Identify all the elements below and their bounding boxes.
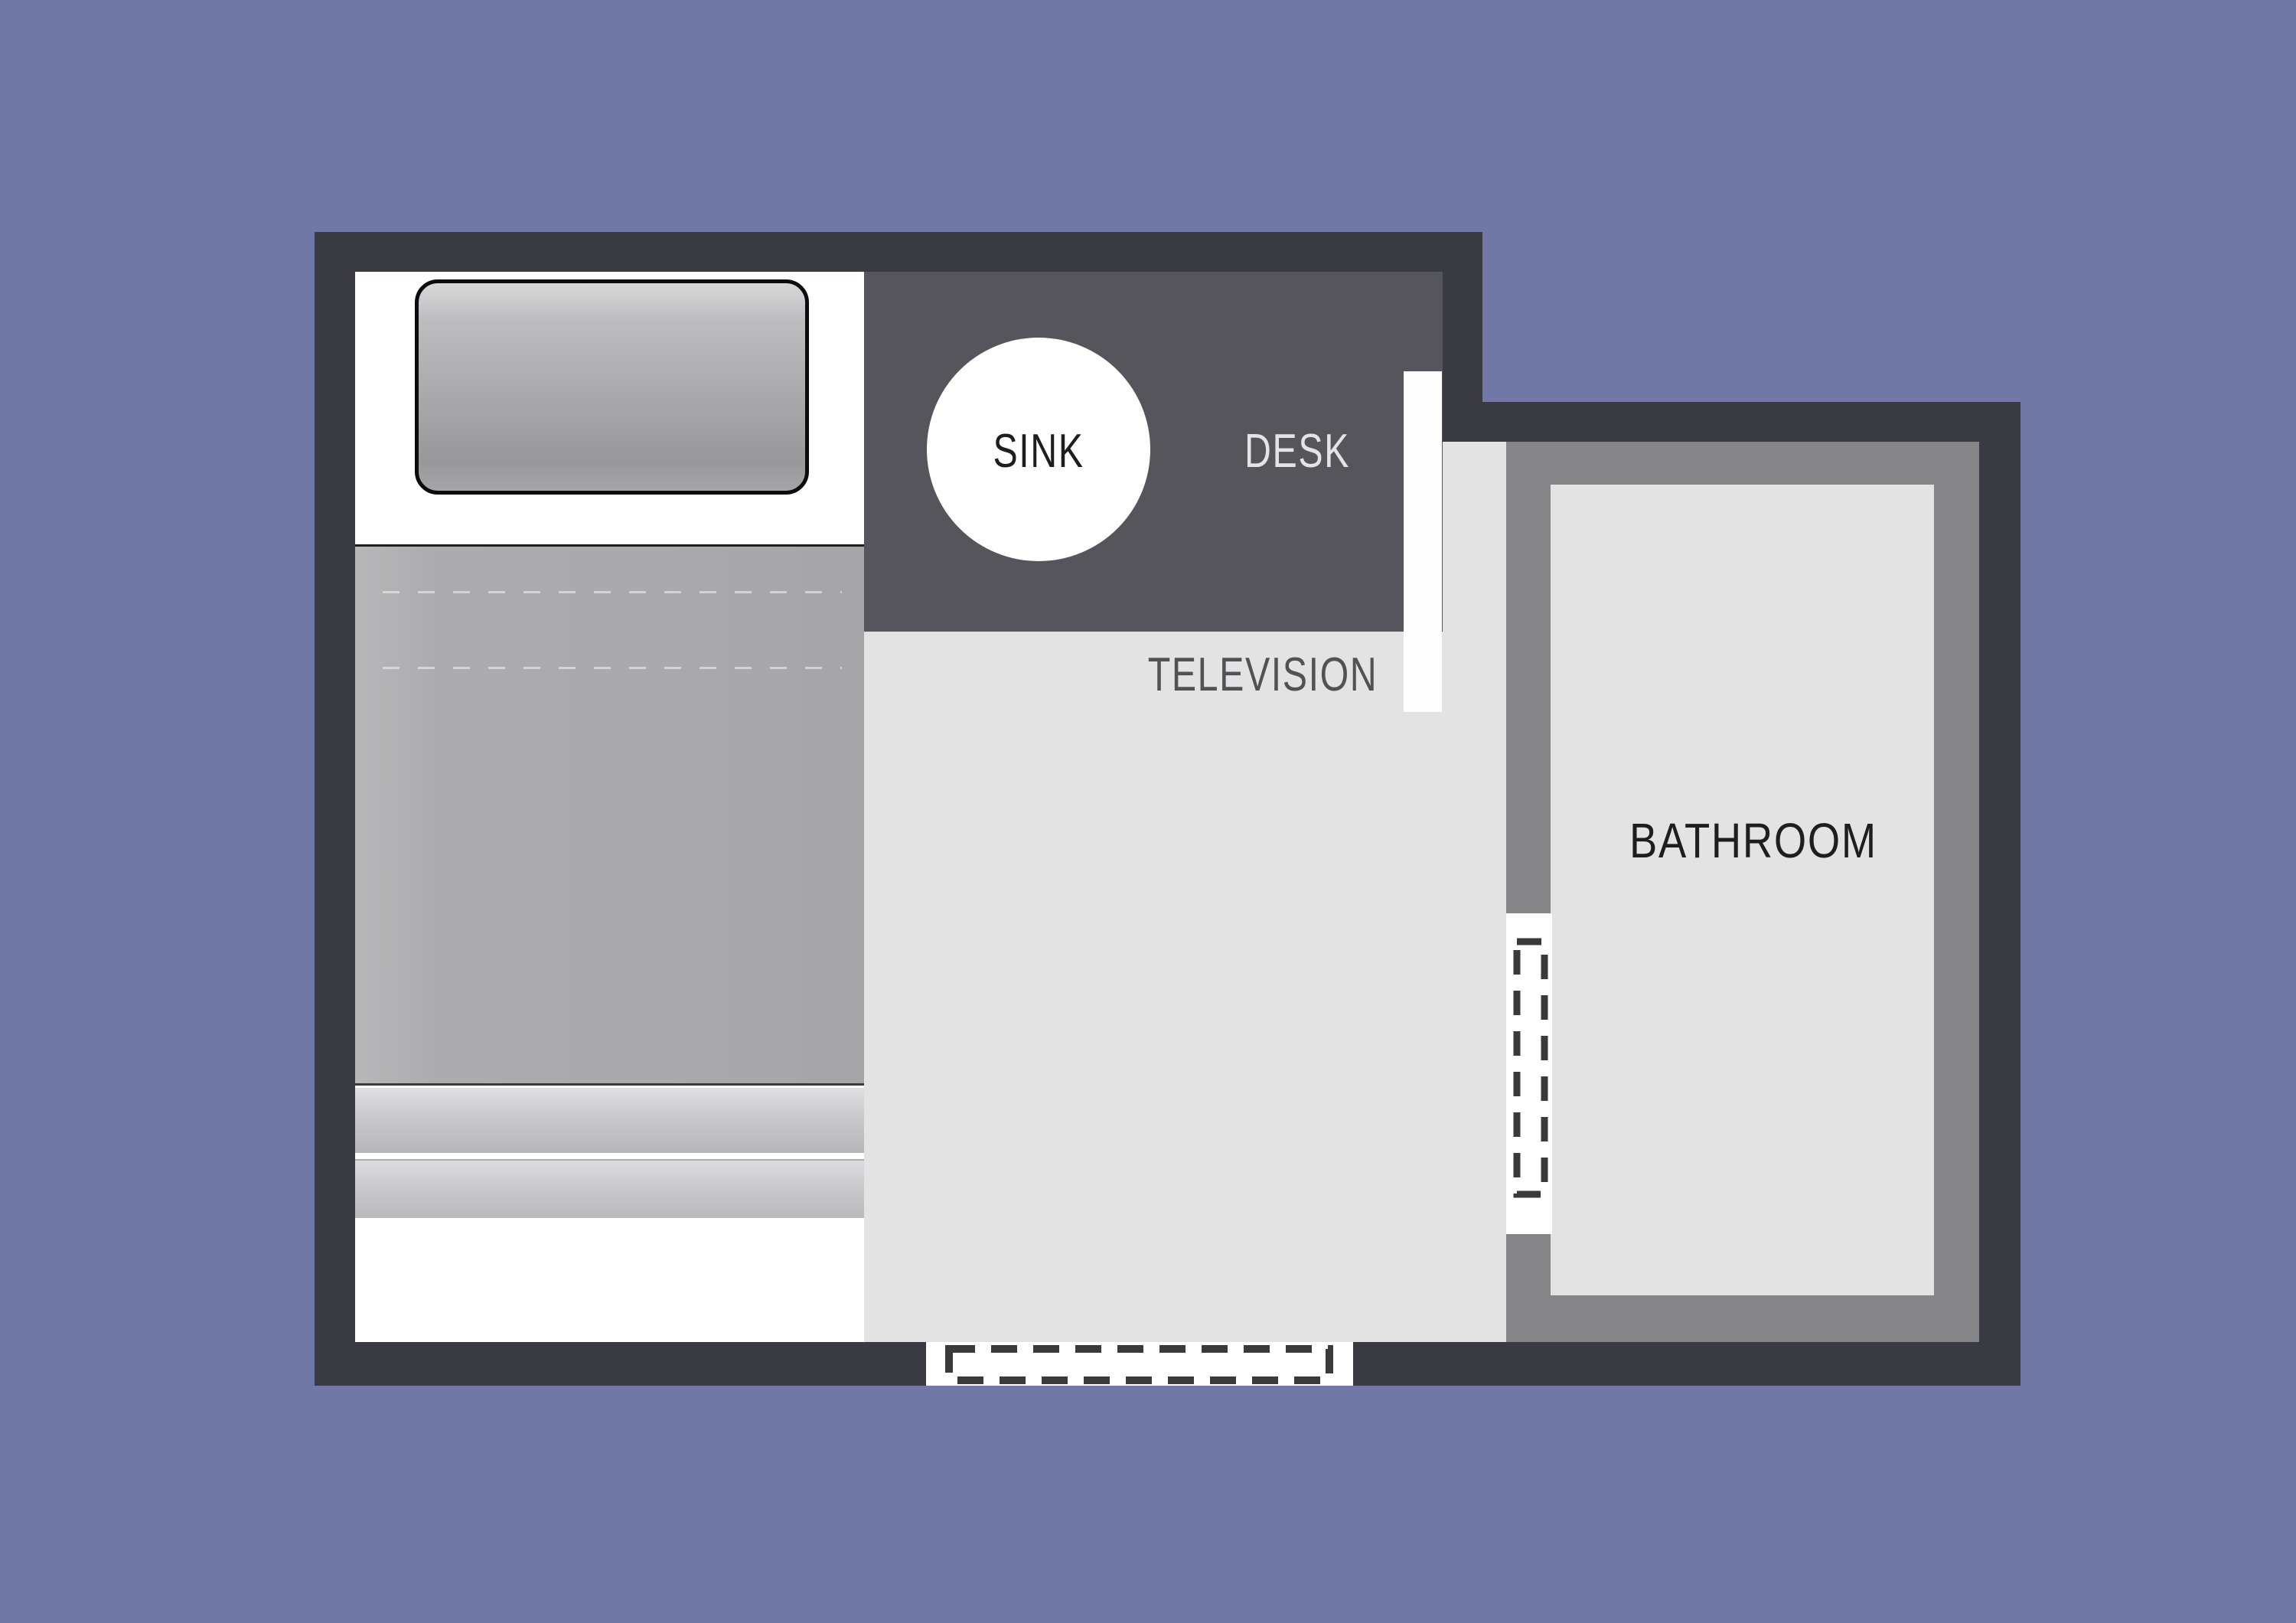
television-label: TELEVISION xyxy=(1148,651,1378,699)
mattress-icon xyxy=(355,544,864,1086)
pillow-icon xyxy=(415,279,809,495)
television-bar-icon xyxy=(1404,371,1442,712)
blanket-strip xyxy=(355,1088,864,1153)
sink-label: SINK xyxy=(993,428,1084,475)
bathroom-label: BATHROOM xyxy=(1629,816,1877,865)
bathroom-floor xyxy=(1551,485,1934,1295)
bathroom-door-dashed-icon xyxy=(1506,913,1552,1234)
entry-door-dashed-icon xyxy=(926,1342,1353,1386)
blanket-strip xyxy=(355,1159,864,1218)
bathroom-door xyxy=(1506,913,1552,1234)
entry-door xyxy=(926,1342,1353,1386)
mattress-stitch-line xyxy=(383,591,842,593)
floor-plan: SINK DESK TELEVISION BATHROOM xyxy=(0,0,2296,1623)
desk-label: DESK xyxy=(1244,428,1350,475)
mattress-stitch-line xyxy=(383,667,842,669)
